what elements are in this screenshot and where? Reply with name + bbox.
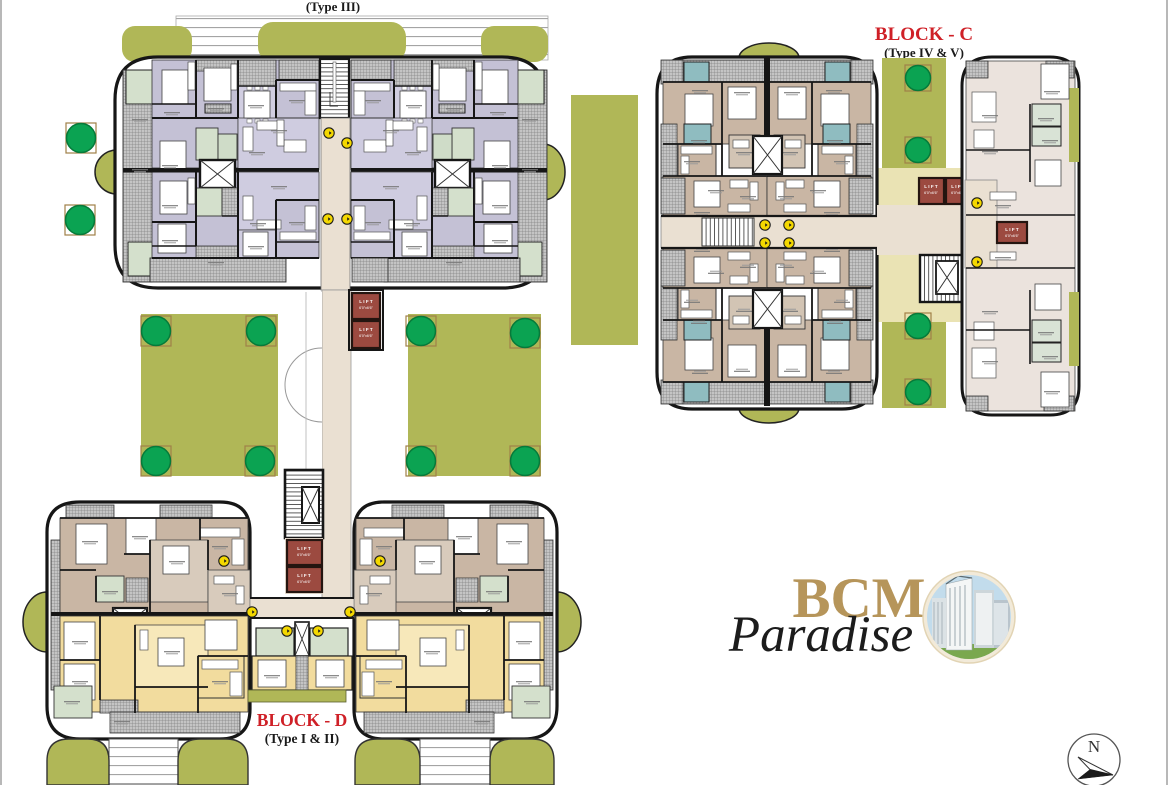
svg-text:L I F T: L I F T — [924, 184, 938, 189]
svg-text:L I F T: L I F T — [1005, 227, 1019, 232]
svg-text:N: N — [1088, 737, 1100, 756]
svg-text:6'0"x6'6": 6'0"x6'6" — [924, 191, 938, 195]
svg-text:(Type I & II): (Type I & II) — [265, 731, 339, 746]
svg-text:Paradise: Paradise — [728, 607, 913, 663]
svg-text:6'0"x6'6": 6'0"x6'6" — [297, 580, 311, 584]
svg-text:L I F T: L I F T — [297, 546, 311, 551]
svg-text:L I F T: L I F T — [359, 299, 373, 304]
svg-text:6'0"x6'6": 6'0"x6'6" — [1005, 234, 1019, 238]
svg-text:L I F T: L I F T — [359, 327, 373, 332]
svg-text:6'0"x6'6": 6'0"x6'6" — [359, 306, 373, 310]
svg-text:BLOCK - C: BLOCK - C — [875, 24, 973, 45]
svg-text:(Type IV & V): (Type IV & V) — [884, 45, 964, 60]
svg-text:(Type III): (Type III) — [306, 0, 360, 14]
svg-text:6'0"x6'6": 6'0"x6'6" — [297, 553, 311, 557]
svg-text:BLOCK - D: BLOCK - D — [257, 710, 347, 730]
svg-text:6'0"x6'6": 6'0"x6'6" — [359, 334, 373, 338]
svg-text:L I F T: L I F T — [297, 573, 311, 578]
